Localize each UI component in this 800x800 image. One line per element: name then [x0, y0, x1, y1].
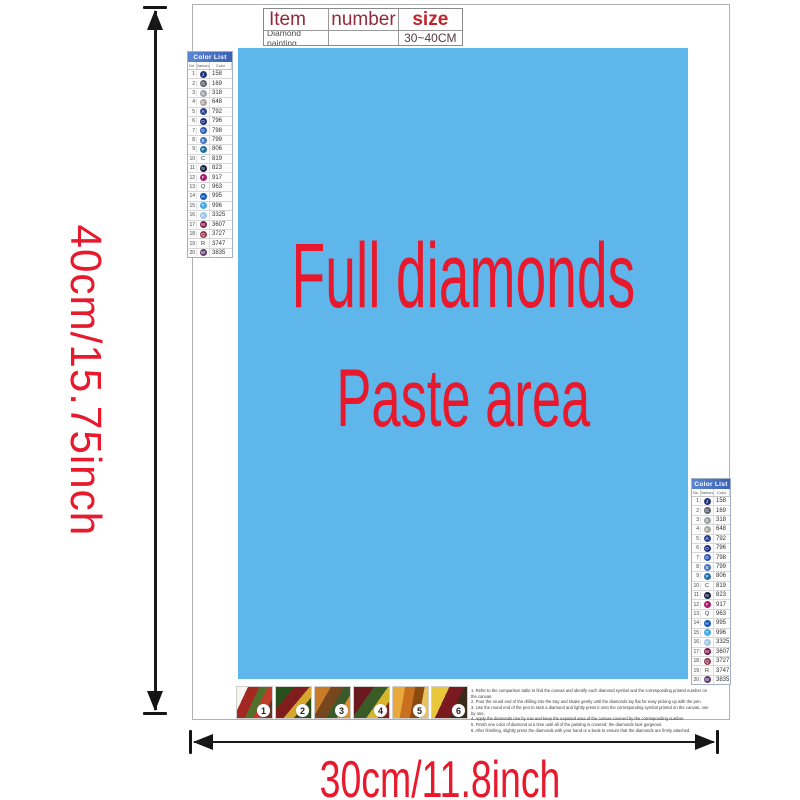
item-value-cell: Diamond painting: [264, 31, 329, 45]
diamond-symbol-icon: E: [197, 98, 210, 106]
color-row: 7 D 798: [692, 553, 730, 562]
color-row: 1 J 158: [692, 497, 730, 506]
color-list-left: Color List No. Diamond Color 1 J 158 2 G…: [187, 51, 233, 258]
height-label: 40cm/15.75inch: [60, 224, 110, 536]
diamond-symbol-icon: K: [701, 638, 714, 646]
size-header-cell: size: [399, 9, 462, 31]
color-code: 3747: [714, 668, 730, 674]
paste-area-title-line2: Paste area: [336, 358, 590, 440]
color-code: 823: [714, 592, 730, 598]
step-number-badge: 1: [257, 704, 270, 717]
color-code: 158: [210, 71, 232, 77]
color-code: 799: [210, 137, 232, 143]
color-row-number: 13: [692, 611, 701, 617]
color-code: 917: [210, 175, 232, 181]
color-row-number: 17: [692, 649, 701, 655]
color-row: 6 O 796: [188, 117, 232, 126]
step-image-4: 4: [353, 686, 390, 719]
diamond-symbol-icon: O: [701, 544, 714, 552]
color-row-number: 19: [188, 241, 197, 247]
diamond-symbol-icon: S: [197, 89, 210, 97]
color-row: 9 P 806: [188, 145, 232, 154]
diamond-symbol-icon: W: [197, 249, 210, 257]
color-row-number: 17: [188, 222, 197, 228]
diamond-symbol-icon: T: [197, 202, 210, 210]
diamond-symbol-icon: K: [197, 211, 210, 219]
color-code: 158: [714, 498, 730, 504]
diamond-symbol-icon: G: [701, 506, 714, 514]
color-code: 3747: [210, 241, 232, 247]
instruction-line: 1. Refer to the comparison table to find…: [471, 688, 709, 699]
color-code: 796: [210, 118, 232, 124]
diamond-symbol-icon: F: [701, 600, 714, 608]
color-row: 2 G 169: [188, 79, 232, 88]
arrow-cap-right: [716, 730, 719, 754]
canvas-sheet: Item number size Diamond painting 30~40C…: [192, 4, 730, 720]
color-row: 12 F 917: [188, 173, 232, 182]
color-row: 2 G 169: [692, 506, 730, 515]
color-code: 3607: [210, 222, 232, 228]
diamond-symbol-icon: W: [701, 676, 714, 684]
color-row: 15 T 996: [692, 629, 730, 638]
color-row-number: 15: [692, 630, 701, 636]
color-row-number: 19: [692, 668, 701, 674]
color-row-number: 20: [188, 250, 197, 256]
color-row-number: 6: [692, 545, 701, 551]
arrow-cap-bottom: [143, 712, 167, 715]
color-code: 796: [714, 545, 730, 551]
color-code: 3727: [210, 231, 232, 237]
diamond-symbol-icon: E: [701, 525, 714, 533]
color-row: 9 P 806: [692, 572, 730, 581]
color-row: 4 E 648: [188, 98, 232, 107]
color-code: 996: [714, 630, 730, 636]
color-row: 15 T 996: [188, 202, 232, 211]
color-code: 3835: [714, 677, 730, 683]
color-row: 19 R 3747: [188, 239, 232, 248]
diamond-symbol-icon: O: [197, 117, 210, 125]
color-list-title: Color List: [188, 52, 232, 62]
color-code: 169: [714, 508, 730, 514]
color-row: 4 E 648: [692, 525, 730, 534]
number-header-cell: number: [329, 9, 398, 31]
color-code: 819: [714, 583, 730, 589]
color-row-number: 18: [692, 658, 701, 664]
instructions-text: 1. Refer to the comparison table to find…: [471, 688, 709, 733]
diamond-symbol-icon: P: [197, 145, 210, 153]
step-number-badge: 4: [374, 704, 387, 717]
color-row-number: 3: [692, 517, 701, 523]
col-color: Color: [210, 62, 232, 69]
color-row-number: 5: [692, 536, 701, 542]
color-code: 318: [714, 517, 730, 523]
color-row-number: 15: [188, 203, 197, 209]
color-code: 648: [714, 526, 730, 532]
color-row-number: 4: [692, 526, 701, 532]
diamond-symbol-icon: D: [701, 553, 714, 561]
arrowhead-down-icon: [147, 691, 163, 711]
diamond-symbol-icon: D: [197, 126, 210, 134]
color-row: 1 J 158: [188, 70, 232, 79]
color-row-number: 5: [188, 109, 197, 115]
color-code: 963: [210, 184, 232, 190]
diamond-symbol-icon: S: [701, 516, 714, 524]
color-row: 8 B 799: [188, 136, 232, 145]
color-row-number: 14: [188, 193, 197, 199]
diamond-symbol-icon: N: [701, 591, 714, 599]
color-row-number: 1: [692, 498, 701, 504]
step-image-2: 2: [275, 686, 312, 719]
diamond-symbol-icon: R: [701, 666, 714, 674]
diamond-symbol-icon: P: [701, 572, 714, 580]
diamond-symbol-icon: C: [197, 155, 210, 163]
color-code: 917: [714, 602, 730, 608]
color-row: 11 N 823: [188, 164, 232, 173]
color-list-columns: No. Diamond Color: [692, 489, 730, 497]
color-row: 10 C 819: [692, 582, 730, 591]
col-diamond: Diamond: [701, 489, 714, 496]
step-image-3: 3: [314, 686, 351, 719]
color-row: 13 Q 963: [692, 610, 730, 619]
color-row-number: 7: [188, 128, 197, 134]
diamond-symbol-icon: T: [701, 629, 714, 637]
arrow-line-vertical: [154, 11, 157, 710]
color-row-number: 12: [692, 602, 701, 608]
color-row: 19 R 3747: [692, 666, 730, 675]
color-code: 819: [210, 156, 232, 162]
instruction-line: 3. Use the round end of the pen to stick…: [471, 705, 709, 716]
color-row: 14 H 995: [188, 192, 232, 201]
color-row-number: 13: [188, 184, 197, 190]
color-row-number: 14: [692, 620, 701, 626]
color-code: 3325: [714, 639, 730, 645]
diamond-symbol-icon: G: [197, 79, 210, 87]
color-code: 792: [714, 536, 730, 542]
diamond-symbol-icon: F: [197, 173, 210, 181]
color-row-number: 1: [188, 71, 197, 77]
diamond-symbol-icon: M: [701, 648, 714, 656]
color-row: 16 K 3325: [692, 638, 730, 647]
diamond-symbol-icon: B: [701, 563, 714, 571]
number-value-cell: [329, 31, 398, 45]
color-code: 798: [714, 555, 730, 561]
step-number-badge: 2: [296, 704, 309, 717]
step-number-badge: 5: [413, 704, 426, 717]
diamond-symbol-icon: Q: [701, 610, 714, 618]
color-row: 16 K 3325: [188, 211, 232, 220]
arrow-line-horizontal: [194, 741, 714, 744]
step-image-5: 5: [392, 686, 429, 719]
color-row-number: 11: [188, 165, 197, 171]
color-row: 20 W 3835: [188, 249, 232, 257]
color-row: 18 Q 3727: [692, 657, 730, 666]
color-code: 798: [210, 128, 232, 134]
color-row-number: 20: [692, 677, 701, 683]
color-row: 3 S 318: [692, 516, 730, 525]
color-row-number: 11: [692, 592, 701, 598]
step-number-badge: 6: [452, 704, 465, 717]
diamond-symbol-icon: C: [701, 582, 714, 590]
color-list-rows: 1 J 158 2 G 169 3 S 318 4 E 648 5 A 792 …: [188, 70, 232, 257]
color-code: 995: [210, 193, 232, 199]
color-row: 8 B 799: [692, 563, 730, 572]
color-code: 792: [210, 109, 232, 115]
color-code: 3727: [714, 658, 730, 664]
color-code: 996: [210, 203, 232, 209]
color-row-number: 7: [692, 555, 701, 561]
color-row: 3 S 318: [188, 89, 232, 98]
product-infographic: 40cm/15.75inch Item number size Diamond …: [0, 0, 800, 800]
item-table: Item number size Diamond painting 30~40C…: [263, 8, 463, 46]
color-code: 3607: [714, 649, 730, 655]
diamond-symbol-icon: H: [197, 192, 210, 200]
diamond-symbol-icon: J: [701, 497, 714, 505]
color-list-right: Color List No. Diamond Color 1 J 158 2 G…: [691, 478, 731, 685]
color-code: 3835: [210, 250, 232, 256]
color-row-number: 9: [692, 573, 701, 579]
step-image-1: 1: [236, 686, 273, 719]
diamond-symbol-icon: A: [701, 535, 714, 543]
color-row-number: 10: [188, 156, 197, 162]
step-images: 123456: [236, 686, 468, 719]
color-row-number: 2: [188, 81, 197, 87]
diamond-symbol-icon: R: [197, 239, 210, 247]
color-code: 806: [714, 573, 730, 579]
diamond-symbol-icon: J: [197, 70, 210, 78]
color-row: 17 M 3607: [188, 221, 232, 230]
color-list-rows: 1 J 158 2 G 169 3 S 318 4 E 648 5 A 792 …: [692, 497, 730, 684]
color-row: 18 Q 3727: [188, 230, 232, 239]
color-row-number: 4: [188, 99, 197, 105]
diamond-symbol-icon: Q: [197, 230, 210, 238]
arrow-cap-left: [189, 730, 192, 754]
diamond-symbol-icon: A: [197, 108, 210, 116]
color-row-number: 18: [188, 231, 197, 237]
color-row: 11 N 823: [692, 591, 730, 600]
color-row: 5 A 792: [692, 535, 730, 544]
color-row: 7 D 798: [188, 126, 232, 135]
diamond-symbol-icon: B: [197, 136, 210, 144]
color-row: 14 H 995: [692, 619, 730, 628]
color-row: 5 A 792: [188, 108, 232, 117]
col-color: Color: [714, 489, 730, 496]
paste-area: Full diamonds Paste area: [238, 48, 688, 679]
color-row: 20 W 3835: [692, 676, 730, 684]
color-code: 3325: [210, 212, 232, 218]
arrowhead-right-icon: [695, 734, 715, 750]
color-code: 963: [714, 611, 730, 617]
color-code: 318: [210, 90, 232, 96]
diamond-symbol-icon: M: [197, 221, 210, 229]
color-row: 13 Q 963: [188, 183, 232, 192]
color-row: 10 C 819: [188, 155, 232, 164]
color-list-title: Color List: [692, 479, 730, 489]
width-label: 30cm/11.8inch: [289, 750, 591, 800]
color-row-number: 9: [188, 146, 197, 152]
paste-area-title-line1: Full diamonds: [291, 230, 635, 322]
col-no: No.: [692, 489, 701, 496]
step-number-badge: 3: [335, 704, 348, 717]
color-row: 6 O 796: [692, 544, 730, 553]
col-no: No.: [188, 62, 197, 69]
color-row-number: 16: [188, 212, 197, 218]
color-code: 169: [210, 81, 232, 87]
height-dimension-arrow: [131, 6, 179, 715]
color-row-number: 8: [188, 137, 197, 143]
col-diamond: Diamond: [197, 62, 210, 69]
color-code: 648: [210, 99, 232, 105]
color-row-number: 16: [692, 639, 701, 645]
color-list-columns: No. Diamond Color: [188, 62, 232, 70]
arrow-cap-top: [143, 6, 167, 9]
color-row-number: 3: [188, 90, 197, 96]
color-row-number: 12: [188, 175, 197, 181]
size-value-cell: 30~40CM: [399, 31, 462, 45]
diamond-symbol-icon: Q: [197, 183, 210, 191]
color-code: 799: [714, 564, 730, 570]
step-image-6: 6: [431, 686, 468, 719]
item-header-cell: Item: [264, 9, 329, 31]
color-row: 12 F 917: [692, 600, 730, 609]
color-row-number: 8: [692, 564, 701, 570]
diamond-symbol-icon: Q: [701, 657, 714, 665]
color-row-number: 2: [692, 508, 701, 514]
color-code: 823: [210, 165, 232, 171]
color-row: 17 M 3607: [692, 648, 730, 657]
color-code: 995: [714, 620, 730, 626]
diamond-symbol-icon: H: [701, 619, 714, 627]
color-row-number: 6: [188, 118, 197, 124]
diamond-symbol-icon: N: [197, 164, 210, 172]
color-code: 806: [210, 146, 232, 152]
color-row-number: 10: [692, 583, 701, 589]
